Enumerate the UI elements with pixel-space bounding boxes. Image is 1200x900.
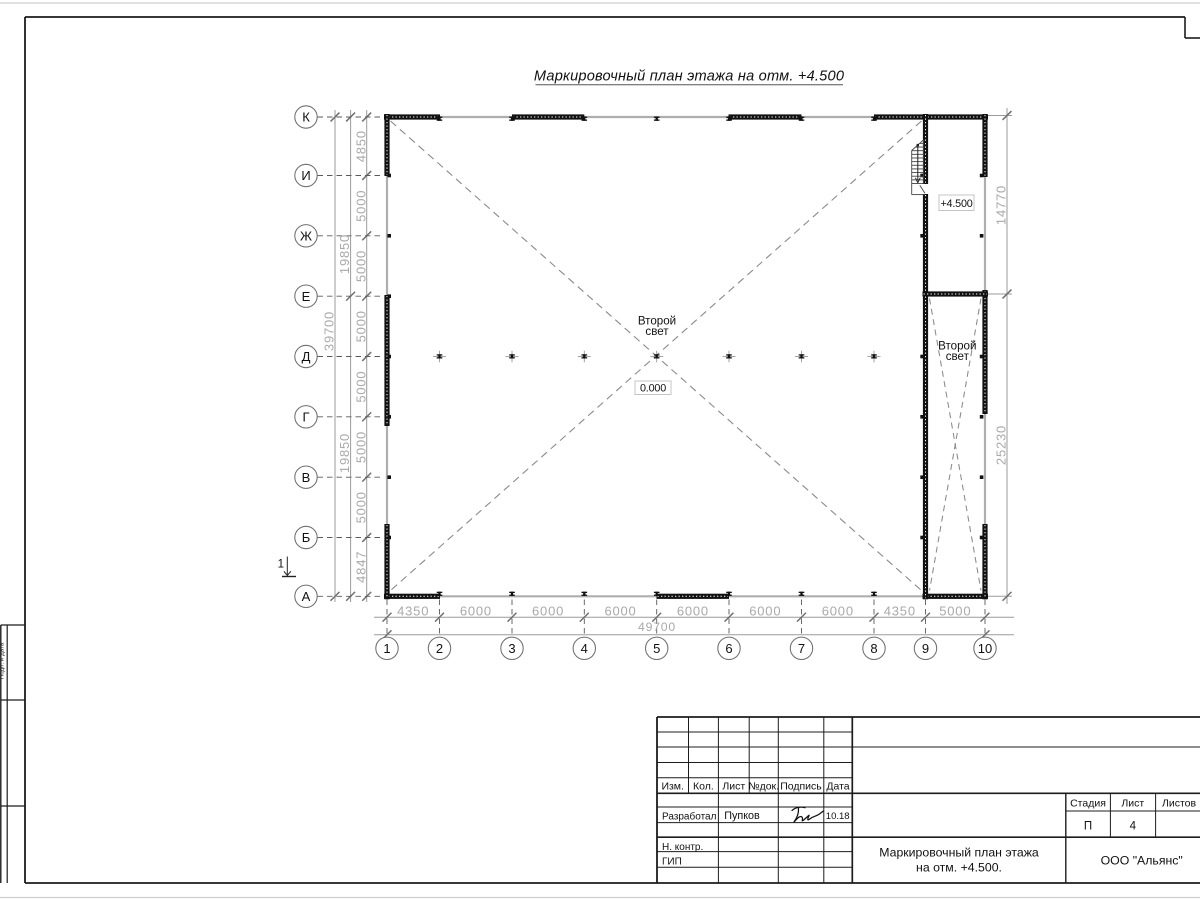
svg-text:3: 3: [508, 641, 515, 656]
svg-text:4: 4: [1130, 821, 1137, 833]
svg-text:4350: 4350: [884, 603, 916, 618]
svg-text:Ж: Ж: [300, 229, 312, 244]
svg-text:1: 1: [278, 559, 284, 571]
svg-text:Дата: Дата: [826, 780, 849, 792]
svg-text:Подп. и дата: Подп. и дата: [0, 642, 6, 679]
svg-text:5000: 5000: [939, 603, 971, 618]
svg-text:свет: свет: [946, 350, 970, 363]
svg-text:5000: 5000: [353, 190, 368, 222]
svg-text:8: 8: [870, 641, 877, 656]
svg-text:К: К: [302, 110, 310, 125]
svg-text:Пупков: Пупков: [724, 810, 760, 822]
svg-text:4847: 4847: [353, 551, 368, 583]
svg-text:Кол.: Кол.: [693, 780, 714, 792]
svg-text:19850: 19850: [337, 433, 352, 473]
svg-text:И: И: [301, 168, 310, 183]
svg-text:ООО "Альянс": ООО "Альянс": [1101, 854, 1183, 868]
svg-text:5000: 5000: [353, 371, 368, 403]
svg-text:6000: 6000: [677, 603, 709, 618]
svg-text:5: 5: [653, 641, 660, 656]
svg-text:Стадия: Стадия: [1070, 798, 1106, 810]
svg-text:4: 4: [581, 641, 588, 656]
svg-text:5000: 5000: [353, 310, 368, 342]
svg-text:Г: Г: [302, 410, 309, 425]
svg-text:ГИП: ГИП: [662, 856, 682, 867]
svg-text:7: 7: [798, 641, 805, 656]
svg-text:5000: 5000: [353, 431, 368, 463]
svg-text:6000: 6000: [460, 603, 492, 618]
svg-text:49700: 49700: [638, 620, 676, 634]
svg-text:1: 1: [383, 641, 390, 656]
svg-text:Б: Б: [302, 530, 311, 545]
svg-text:А: А: [302, 589, 311, 604]
svg-text:5000: 5000: [353, 491, 368, 523]
svg-text:№док.: №док.: [748, 780, 779, 792]
svg-text:2: 2: [436, 641, 443, 656]
svg-text:6000: 6000: [532, 603, 564, 618]
svg-text:Лист: Лист: [722, 780, 745, 792]
svg-text:Разработал: Разработал: [662, 810, 717, 822]
svg-text:4850: 4850: [353, 130, 368, 162]
svg-text:свет: свет: [645, 325, 669, 338]
svg-text:9: 9: [922, 641, 929, 656]
svg-text:6000: 6000: [604, 603, 636, 618]
svg-text:Н. контр.: Н. контр.: [662, 842, 703, 853]
svg-text:Подпись: Подпись: [780, 780, 822, 792]
svg-text:Листов: Листов: [1162, 798, 1197, 810]
svg-text:6: 6: [725, 641, 732, 656]
svg-text:10: 10: [978, 641, 992, 656]
svg-text:Маркировочный план этажа на от: Маркировочный план этажа на отм. +4.500: [534, 69, 844, 85]
svg-text:Е: Е: [302, 289, 311, 304]
svg-text:5000: 5000: [353, 250, 368, 282]
svg-text:4350: 4350: [397, 603, 429, 618]
svg-text:Изм.: Изм.: [661, 780, 684, 792]
svg-text:6000: 6000: [749, 603, 781, 618]
svg-text:Маркировочный план этажа: Маркировочный план этажа: [879, 846, 1039, 860]
svg-text:Лист: Лист: [1121, 798, 1144, 810]
svg-text:П: П: [1084, 821, 1092, 833]
svg-text:14770: 14770: [993, 185, 1008, 225]
svg-text:+4.500: +4.500: [940, 198, 972, 210]
svg-text:25230: 25230: [993, 425, 1008, 465]
svg-text:В: В: [302, 470, 311, 485]
svg-text:Д: Д: [302, 349, 311, 364]
svg-text:0.000: 0.000: [640, 382, 666, 394]
svg-text:на отм. +4.500.: на отм. +4.500.: [916, 860, 1002, 874]
svg-text:39700: 39700: [322, 311, 337, 351]
svg-text:10.18: 10.18: [826, 811, 850, 822]
svg-text:6000: 6000: [822, 603, 854, 618]
svg-text:19850: 19850: [337, 234, 352, 274]
